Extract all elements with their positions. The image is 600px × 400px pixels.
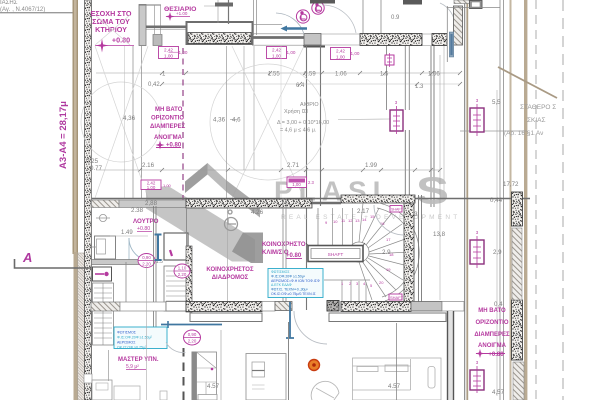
svg-text:ΔΙΑΜΠΕΡΕΣ: ΔΙΑΜΠΕΡΕΣ (150, 124, 186, 130)
svg-text:2.17: 2.17 (357, 208, 370, 215)
svg-text:ΣΤΑΘΕΡΟ Σ: ΣΤΑΘΕΡΟ Σ (520, 104, 556, 111)
svg-text:ΑΝΟΙΓΜΑ: ΑΝΟΙΓΜΑ (154, 135, 183, 141)
svg-text:2,42: 2,42 (164, 48, 173, 53)
svg-text:0,42: 0,42 (148, 82, 160, 88)
svg-text:1,00: 1,00 (287, 50, 296, 55)
svg-text:17,72: 17,72 (503, 181, 519, 188)
svg-text:ΜΗ ΒΑΤΟ: ΜΗ ΒΑΤΟ (155, 107, 183, 113)
svg-text:ΟΚ.ΙΣ:ΟΦ.≥0.75μ²: ΟΚ.ΙΣ:ΟΦ.≥0.75μ² (117, 346, 147, 350)
svg-text:1,00: 1,00 (147, 185, 156, 190)
svg-text:1,00: 1,00 (272, 54, 281, 59)
svg-text:2,42: 2,42 (272, 48, 281, 53)
svg-text:ΜΗ ΒΑΤΟ: ΜΗ ΒΑΤΟ (478, 308, 506, 314)
svg-text:ΜΑΣΤΕΡ ΥΠΝ.: ΜΑΣΤΕΡ ΥΠΝ. (118, 357, 159, 363)
svg-text:2.16: 2.16 (142, 162, 155, 169)
svg-text:1.99: 1.99 (365, 162, 378, 169)
svg-text:Χρήση ΙΣΙ: Χρήση ΙΣΙ (284, 108, 308, 115)
svg-text:SHAFT: SHAFT (391, 208, 404, 212)
svg-text:15: 15 (370, 214, 375, 219)
svg-text:= 4,6 μ ≤ 4,6 μ.: = 4,6 μ ≤ 4,6 μ. (280, 128, 316, 134)
svg-text:17: 17 (386, 237, 391, 242)
svg-text:4,36: 4,36 (213, 117, 226, 124)
svg-text:5,9 μ²: 5,9 μ² (126, 364, 139, 370)
svg-text:4.57: 4.57 (207, 383, 220, 390)
svg-text:ΑΕΡΙΣΜΟΣ: ΑΕΡΙΣΜΟΣ (117, 341, 136, 345)
svg-text:18: 18 (389, 252, 394, 257)
svg-text:4,6: 4,6 (232, 117, 241, 124)
svg-text:SHAFT: SHAFT (328, 252, 344, 258)
svg-text:2.38: 2.38 (131, 207, 144, 214)
svg-text:1,00: 1,00 (292, 182, 301, 187)
svg-text:10: 10 (333, 219, 338, 224)
svg-text:ΙΑΣΗΣ: ΙΑΣΗΣ (0, 0, 18, 6)
svg-text:2.3: 2.3 (308, 180, 314, 185)
svg-text:ΟΚ.ΙΣ:ΟΦ.≥0.75μ/0.ΤΕΧΝ.ΙΣ: ΟΚ.ΙΣ:ΟΦ.≥0.75μ/0.ΤΕΧΝ.ΙΣ (271, 292, 317, 296)
svg-text:Δ.ΕΓΚ ΕΔΑΦ: Δ.ΕΓΚ ΕΔΑΦ (271, 283, 292, 287)
svg-text:4.57: 4.57 (388, 383, 401, 390)
svg-text:4,57: 4,57 (492, 389, 505, 396)
svg-text:ΚΟΙΝΟΧΡΗΣΤΟΣ: ΚΟΙΝΟΧΡΗΣΤΟΣ (206, 267, 254, 273)
svg-text:Δ = 3,00 + 0,10*16,00: Δ = 3,00 + 0,10*16,00 (277, 120, 329, 126)
svg-text:SHAFT: SHAFT (390, 295, 404, 300)
svg-text:1.5: 1.5 (380, 72, 389, 78)
svg-text:1,00: 1,00 (164, 54, 173, 59)
svg-text:1.06: 1.06 (428, 72, 440, 78)
svg-text:(Αγ. , Ν.4067/12): (Αγ. , Ν.4067/12) (0, 7, 45, 13)
svg-text:4,36: 4,36 (123, 115, 136, 122)
svg-text:ΚΟΙΝΟΧΡΗΣΤΟ: ΚΟΙΝΟΧΡΗΣΤΟ (262, 242, 306, 248)
svg-text:ΚΤΗΡΙΟΥ: ΚΤΗΡΙΟΥ (95, 25, 127, 34)
svg-text:0,90: 0,90 (142, 255, 151, 260)
svg-text:2,20: 2,20 (178, 272, 187, 277)
svg-text:ΟΡΙΖΟΝΤΙΟ: ΟΡΙΖΟΝΤΙΟ (476, 320, 509, 326)
svg-text:ΚΛΙΜ/ΣΙΟ: ΚΛΙΜ/ΣΙΟ (262, 250, 289, 256)
svg-text:5,5: 5,5 (492, 99, 501, 106)
svg-text:Α3-Α4 = 28,17μ: Α3-Α4 = 28,17μ (58, 101, 69, 169)
svg-text:ΔΙΑΜΠΕΡΕΣ: ΔΙΑΜΠΕΡΕΣ (474, 332, 510, 338)
svg-text:2,9: 2,9 (493, 249, 502, 256)
svg-text:0.59: 0.59 (304, 72, 316, 78)
svg-text:ΑΝΟΙΓΜΑ: ΑΝΟΙΓΜΑ (478, 343, 507, 349)
svg-text:4.26: 4.26 (251, 209, 264, 216)
svg-text:20: 20 (379, 280, 384, 285)
svg-text:1,00: 1,00 (351, 51, 360, 56)
svg-text:Φ.ΙΣ:ΟΦ.20Φ ≥1.50μ²: Φ.ΙΣ:ΟΦ.20Φ ≥1.50μ² (117, 336, 153, 340)
svg-text:0.25: 0.25 (86, 158, 99, 165)
svg-text:Α: Α (22, 250, 32, 265)
svg-text:2,20: 2,20 (142, 262, 151, 267)
svg-text:2,88: 2,88 (145, 200, 158, 207)
svg-text:ΔΙΑΔΡΟΜΟΣ: ΔΙΑΔΡΟΜΟΣ (212, 275, 249, 281)
svg-text:2,20: 2,20 (188, 339, 197, 344)
svg-text:ΦΩΤΙΣΜΟΣ: ΦΩΤΙΣΜΟΣ (117, 331, 137, 335)
svg-text:1,00: 1,00 (163, 183, 172, 188)
svg-text:+0.80: +0.80 (488, 352, 504, 358)
svg-text:0.77: 0.77 (90, 165, 103, 172)
svg-text:1.49: 1.49 (121, 230, 133, 236)
svg-text:Φ.ΙΣ:ΟΦ.20Φ ≥1.50μ²: Φ.ΙΣ:ΟΦ.20Φ ≥1.50μ² (271, 275, 306, 279)
svg-text:19: 19 (386, 267, 391, 272)
svg-text:ΑΙΘΡΙΟ: ΑΙΘΡΙΟ (300, 102, 319, 108)
svg-text:13: 13 (355, 218, 360, 223)
svg-text:2.71: 2.71 (287, 162, 300, 169)
svg-text:1,10: 1,10 (178, 266, 187, 271)
svg-text:14: 14 (362, 217, 367, 222)
svg-text:ΛΟΥΤΡΟ: ΛΟΥΤΡΟ (133, 218, 159, 225)
svg-text:ΟΡΙΖΟΝΤΙΟ: ΟΡΙΖΟΝΤΙΟ (151, 116, 184, 122)
svg-text:1.3: 1.3 (415, 84, 424, 90)
svg-text:+0.80: +0.80 (137, 226, 150, 232)
svg-text:0,90: 0,90 (188, 332, 197, 337)
svg-text:ΣΚΙΑΣ: ΣΚΙΑΣ (527, 117, 546, 124)
svg-text:S: S (416, 171, 449, 213)
svg-text:2,42: 2,42 (336, 49, 345, 54)
svg-text:+1.00: +1.00 (176, 11, 188, 16)
svg-text:ΦΩΤ.ΙΣ. ΤΕΧΝ³+0.,30μ²: ΦΩΤ.ΙΣ. ΤΕΧΝ³+0.,30μ² (271, 288, 308, 292)
svg-text:ΦΩΤΙΣΜΟΣ: ΦΩΤΙΣΜΟΣ (271, 270, 290, 274)
svg-text:1,00: 1,00 (336, 55, 345, 60)
svg-text:1.06: 1.06 (335, 72, 347, 78)
svg-text:1.55: 1.55 (268, 72, 280, 78)
svg-text:0,4: 0,4 (494, 301, 503, 308)
svg-text:12: 12 (348, 218, 353, 223)
svg-text:13,8: 13,8 (433, 231, 446, 238)
svg-text:0.9: 0.9 (391, 15, 400, 21)
